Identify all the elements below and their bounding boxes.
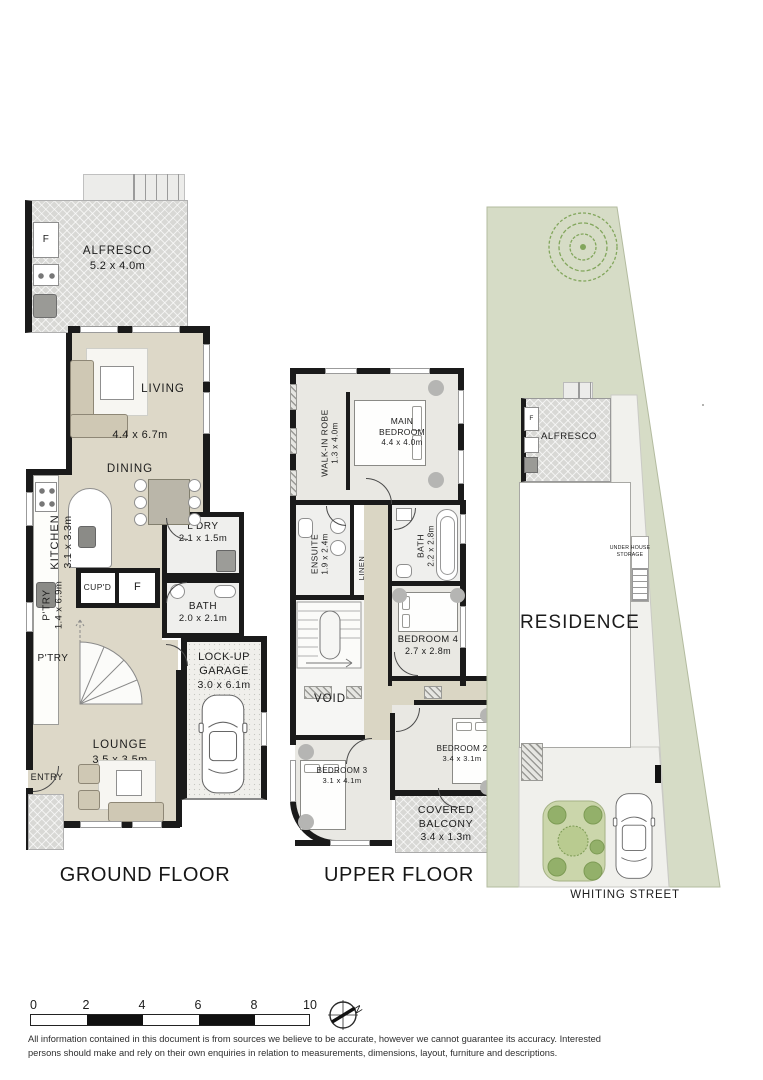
north-arrow-icon: N xyxy=(324,994,366,1036)
garage-label: LOCK-UP GARAGE 3.0 x 6.1m xyxy=(188,650,260,692)
stairs-ground xyxy=(72,614,144,706)
robe-label: WALK-IN ROBE 1.3 x 4.0m xyxy=(319,409,340,477)
ground-floor-title: GROUND FLOOR xyxy=(20,864,270,887)
cooktop xyxy=(35,482,57,512)
residence-label: RESIDENCE xyxy=(520,611,630,636)
side-table xyxy=(298,814,314,830)
bbq xyxy=(33,264,59,286)
car-street xyxy=(611,791,657,881)
disclaimer-line2: persons should make and rely on their ow… xyxy=(28,1046,744,1060)
storage-stairs xyxy=(632,568,648,601)
upper-bath-label: BATH 2.2 x 2.8m xyxy=(415,525,436,566)
window xyxy=(390,368,430,374)
alfresco-label: ALFRESCO 5.2 x 4.0m xyxy=(55,244,180,273)
scale-tick: 8 xyxy=(251,998,258,1012)
linen-label: LINEN xyxy=(357,556,367,581)
window xyxy=(132,821,162,828)
steps-treads xyxy=(133,174,185,202)
bedroom3-label: BEDROOM 3 3.1 x 4.1m xyxy=(314,766,370,786)
window xyxy=(80,821,122,828)
window xyxy=(26,492,33,526)
window xyxy=(261,712,267,746)
window xyxy=(458,450,464,484)
site-alfresco-label: ALFRESCO xyxy=(531,431,607,443)
site-plan: ALFRESCO F WT RESIDENCE UNDER HOUSE STOR… xyxy=(483,195,763,895)
site-residence: RESIDENCE xyxy=(519,482,631,748)
cupboard-label: CUP'D xyxy=(80,568,115,608)
room-dim: 5.2 x 4.0m xyxy=(55,259,180,273)
upper-floor-title: UPPER FLOOR xyxy=(290,864,508,887)
ensuite-basin xyxy=(330,540,346,556)
balcony-label: COVERED BALCONY 3.4 x 1.3m xyxy=(406,804,486,844)
pantry2-label: P'TRY xyxy=(28,652,78,665)
robe-hatch xyxy=(424,686,442,699)
window xyxy=(330,840,370,846)
upper-floor-plan: WALK-IN ROBE 1.3 x 4.0m MAIN BEDROOM 4.4… xyxy=(290,368,508,860)
wall xyxy=(203,475,210,517)
garage-door-marker xyxy=(655,765,661,783)
coffee-table xyxy=(116,770,142,796)
dining-label: DINING xyxy=(95,462,165,477)
sofa xyxy=(70,360,94,422)
louvre-window xyxy=(290,470,297,496)
scale-tick: 4 xyxy=(139,998,146,1012)
fridge-alfresco: F xyxy=(33,222,59,258)
site-fridge: F xyxy=(524,407,539,431)
chair xyxy=(134,496,147,509)
window xyxy=(132,326,180,333)
bath-toilet xyxy=(396,564,412,578)
side-table xyxy=(428,380,444,396)
bath-label: BATH 2.0 x 2.1m xyxy=(166,600,240,625)
scale-tick: 0 xyxy=(30,998,37,1012)
chair xyxy=(134,513,147,526)
wall xyxy=(392,581,462,586)
room-name: ALFRESCO xyxy=(55,244,180,259)
scale-tick: 10 xyxy=(303,998,317,1012)
scale-tick: 2 xyxy=(83,998,90,1012)
scale-tick: 6 xyxy=(195,998,202,1012)
window xyxy=(203,392,210,434)
armchair xyxy=(78,764,100,784)
washer xyxy=(216,550,236,572)
scale-bar: 0 2 4 6 8 10 xyxy=(30,998,320,1028)
pantry-label: P'TRY 1.4 x 6.9m xyxy=(40,581,65,629)
chair xyxy=(188,479,201,492)
louvre-window xyxy=(290,384,297,410)
kitchen-label: KITCHEN 3.1 x 3.3m xyxy=(48,514,76,569)
chair xyxy=(134,479,147,492)
louvre-window xyxy=(290,428,297,454)
wall xyxy=(295,735,365,740)
void-label: VOID xyxy=(302,692,358,707)
stairs-upper xyxy=(296,601,362,671)
site-front-steps xyxy=(521,743,543,781)
window xyxy=(203,344,210,382)
bedroom2-label: BEDROOM 2 3.4 x 3.1m xyxy=(436,744,488,764)
side-table xyxy=(298,744,314,760)
wall xyxy=(390,713,395,800)
disclaimer-line1: All information contained in this docume… xyxy=(28,1032,744,1046)
window xyxy=(460,606,466,648)
window xyxy=(325,368,357,374)
toilet xyxy=(214,585,236,598)
living-dim: 4.4 x 6.7m xyxy=(105,428,175,442)
wall xyxy=(458,368,464,505)
floorplan-page: ALFRESCO 5.2 x 4.0m F L'DRY 2.1 x 1.5m B… xyxy=(0,0,763,1080)
ensuite-label: ENSUITE 1.9 x 2.4m xyxy=(309,533,330,574)
pillow xyxy=(456,722,472,731)
wall xyxy=(295,595,364,600)
island-sink xyxy=(78,526,96,548)
armchair xyxy=(78,790,100,810)
site-steps xyxy=(578,382,593,399)
main-bedroom-label: MAIN BEDROOM 4.4 x 4.0m xyxy=(372,416,432,448)
site-unit xyxy=(524,457,538,473)
chair xyxy=(188,496,201,509)
scale-bar-track xyxy=(30,1014,310,1026)
hallway xyxy=(364,505,388,682)
robe-shelf xyxy=(346,392,350,490)
street-label: WHITING STREET xyxy=(540,888,710,903)
window xyxy=(26,602,33,632)
side-table xyxy=(392,588,407,603)
side-table xyxy=(450,588,465,603)
window xyxy=(290,760,296,802)
disclaimer: All information contained in this docume… xyxy=(28,1032,744,1061)
wall xyxy=(350,505,354,600)
chair xyxy=(188,513,201,526)
site-bbq xyxy=(524,437,539,453)
sofa xyxy=(108,802,164,822)
window xyxy=(80,326,118,333)
alfresco-unit xyxy=(33,294,57,318)
living-label: LIVING xyxy=(128,382,198,397)
fridge-label: F xyxy=(119,568,156,608)
entry-porch xyxy=(28,794,64,850)
wall xyxy=(295,368,460,374)
wall xyxy=(290,368,296,745)
pillow xyxy=(402,614,410,628)
bathtub xyxy=(436,509,458,581)
ground-floor-plan: ALFRESCO 5.2 x 4.0m F L'DRY 2.1 x 1.5m B… xyxy=(20,172,270,864)
window xyxy=(458,390,464,424)
storage-label: UNDER HOUSE STORAGE xyxy=(609,545,651,559)
car-garage xyxy=(194,692,252,796)
side-table xyxy=(428,472,444,488)
window xyxy=(460,514,466,544)
